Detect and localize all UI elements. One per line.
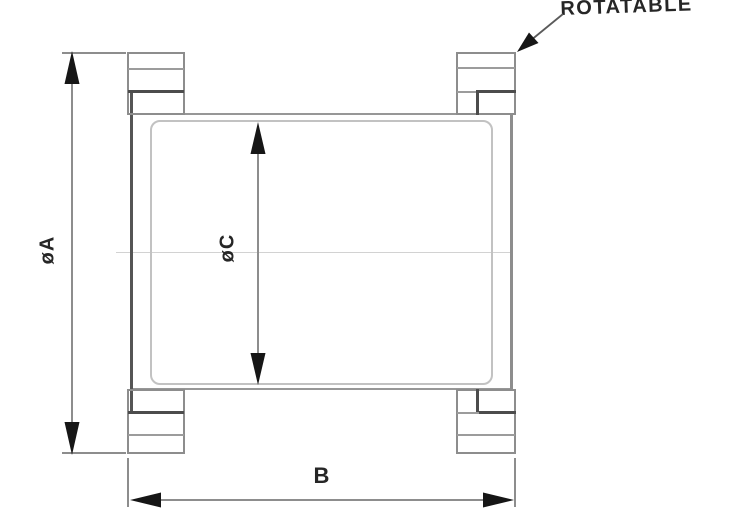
- dim-b-extension-left-line: [127, 458, 129, 507]
- tube-left-wall-line: [130, 90, 133, 413]
- dim-c-line: [257, 140, 259, 366]
- flange-bottom-right-lip-line: [477, 411, 516, 414]
- flange-bottom-right-mid-line: [457, 434, 515, 436]
- flange-bottom-left-mid-line: [128, 434, 184, 436]
- flange-top-left-mid-line: [128, 68, 184, 70]
- flange-bottom-left-outline: [127, 389, 185, 454]
- flange-bottom-left-face-line: [128, 411, 184, 414]
- flange-top-right-mid-line: [457, 67, 515, 69]
- dim-b-line: [152, 499, 492, 501]
- arrowhead-callout-icon: [517, 33, 539, 53]
- tube-right-wall-line: [510, 114, 513, 390]
- rotatable-callout-label: ROTATABLE: [560, 0, 693, 21]
- tube-inner-bore-outline: [150, 120, 493, 385]
- dim-a-line: [71, 70, 73, 436]
- dim-b-extension-right-line: [514, 458, 516, 507]
- dim-a-extension-top-line: [62, 52, 126, 54]
- flange-top-left-face-line: [128, 90, 184, 93]
- flange-top-right-lip-edge: [476, 90, 479, 115]
- dim-b-label: B: [314, 463, 331, 489]
- dim-a-extension-bottom-line: [62, 452, 126, 454]
- flange-top-left-outline: [127, 52, 185, 115]
- flange-top-right-outline: [456, 52, 516, 115]
- flange-bottom-right-outline: [456, 389, 516, 454]
- dim-a-label: øA: [37, 236, 60, 265]
- flange-bottom-right-face-line-inner: [457, 412, 479, 414]
- technical-drawing-canvas: øA øC B ROTATABLE: [0, 0, 750, 513]
- dim-c-label: øC: [217, 234, 240, 263]
- callout-leader-line: [530, 14, 563, 41]
- flange-top-right-lip-line: [477, 90, 516, 93]
